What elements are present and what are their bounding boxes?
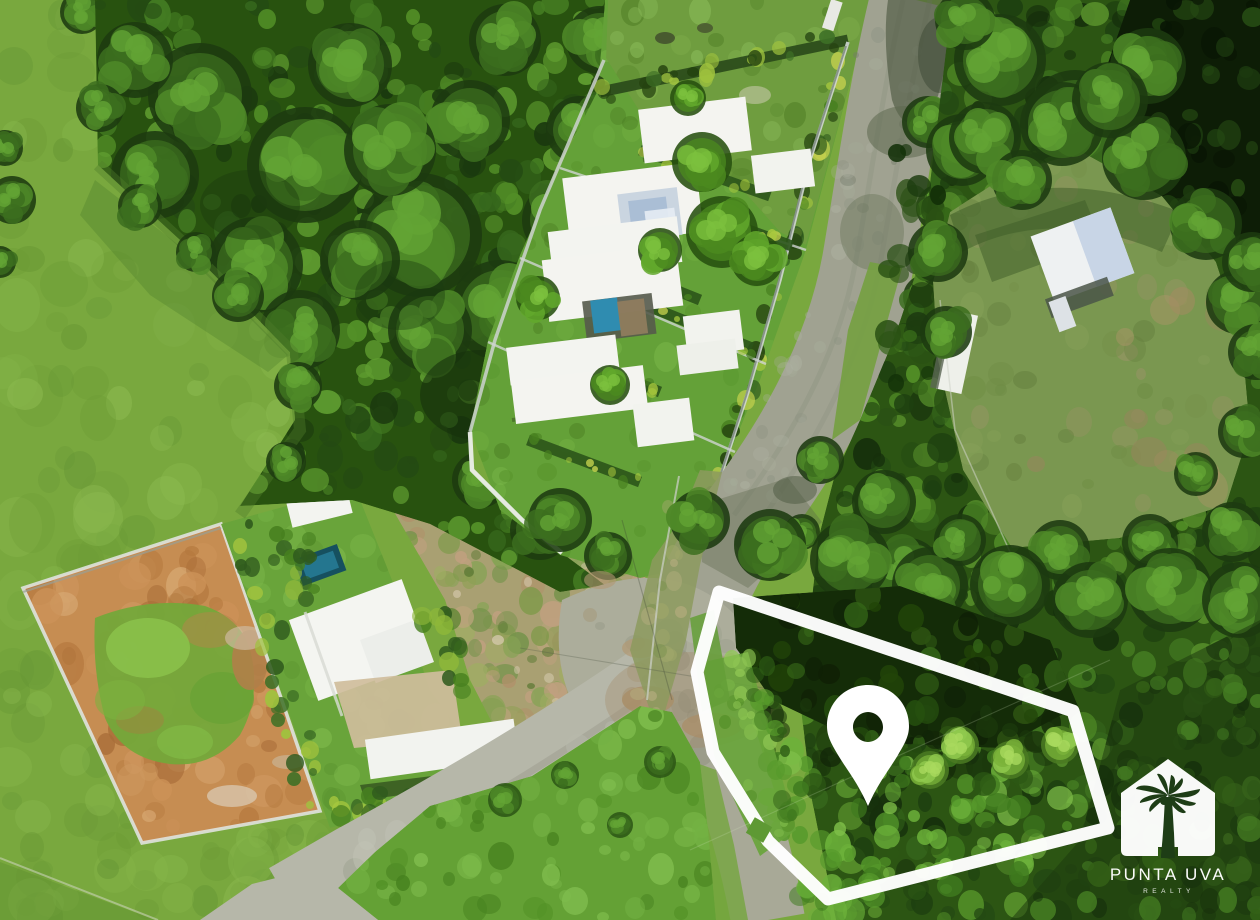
- svg-text:PUNTA UVA: PUNTA UVA: [1110, 865, 1226, 884]
- svg-text:REALTY: REALTY: [1143, 888, 1195, 895]
